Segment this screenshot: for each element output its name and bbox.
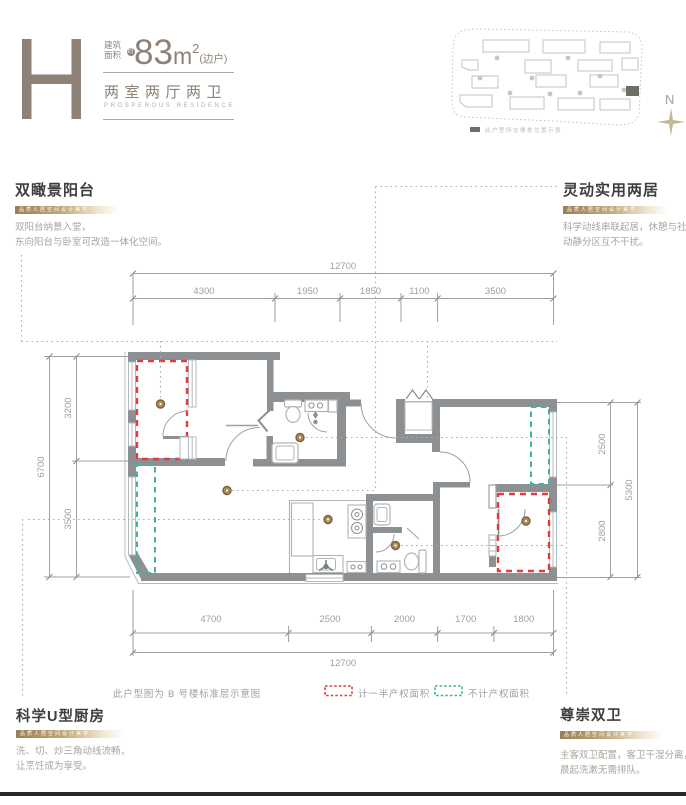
svg-text:1950: 1950 <box>297 286 318 297</box>
svg-text:1700: 1700 <box>455 614 476 625</box>
svg-text:4300: 4300 <box>193 286 214 297</box>
svg-text:此户型图为 B 号楼标准层示意图: 此户型图为 B 号楼标准层示意图 <box>113 688 261 700</box>
svg-text:5300: 5300 <box>624 479 635 500</box>
svg-text:3200: 3200 <box>63 397 74 418</box>
svg-text:不计产权面积: 不计产权面积 <box>468 688 530 700</box>
svg-text:1100: 1100 <box>409 286 429 297</box>
svg-text:1800: 1800 <box>513 614 534 625</box>
svg-text:1850: 1850 <box>360 286 381 297</box>
svg-text:2500: 2500 <box>319 614 340 625</box>
svg-text:12700: 12700 <box>330 261 356 272</box>
svg-text:2500: 2500 <box>597 433 608 454</box>
svg-text:2000: 2000 <box>394 614 415 625</box>
svg-text:3500: 3500 <box>485 286 506 297</box>
svg-text:6700: 6700 <box>36 456 47 477</box>
svg-text:4700: 4700 <box>200 614 221 625</box>
svg-text:计一半产权面积: 计一半产权面积 <box>358 688 430 700</box>
svg-text:2800: 2800 <box>597 520 608 541</box>
svg-text:12700: 12700 <box>330 658 356 669</box>
